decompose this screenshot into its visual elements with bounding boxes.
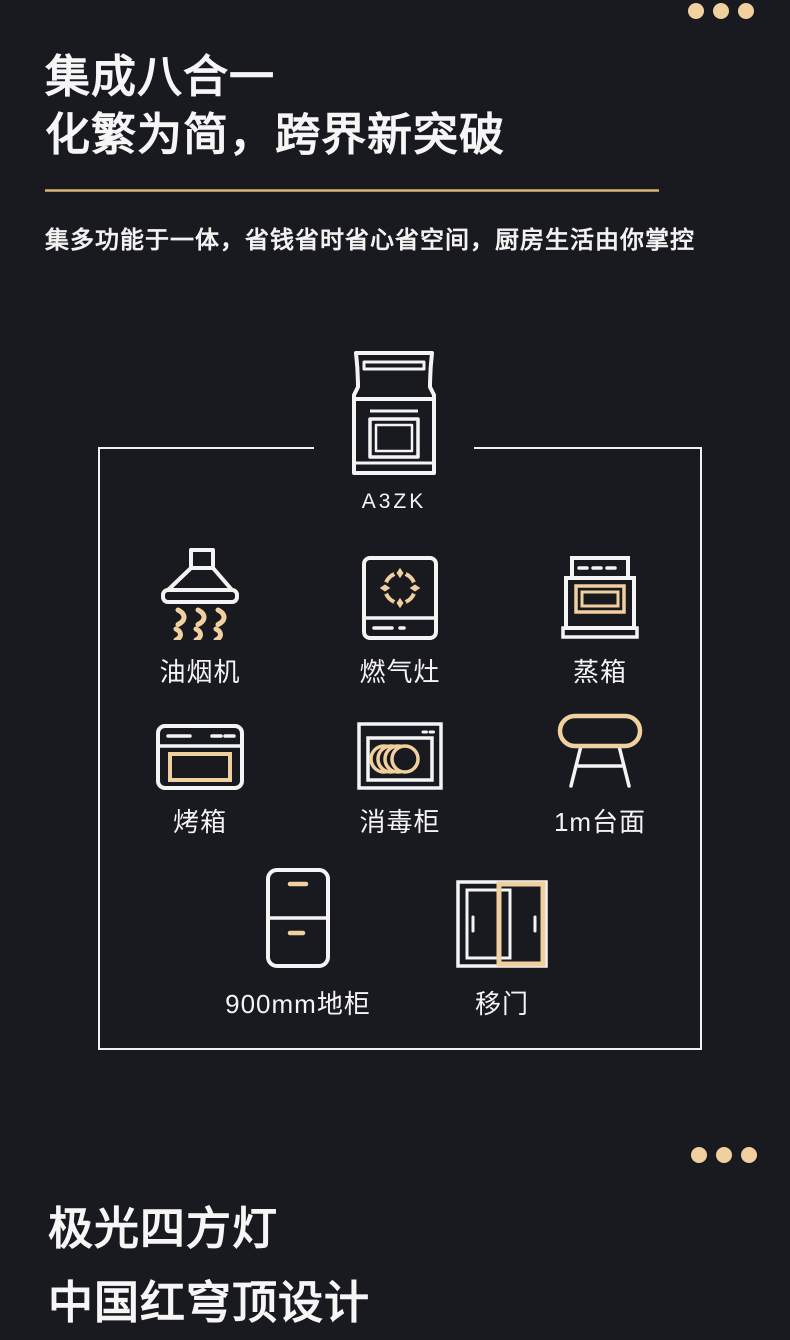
dot-icon [691,1147,707,1163]
dot-icon [713,3,729,19]
ellipsis-dots-top [688,3,754,19]
diagram-row-2: 烤箱 消毒柜 [100,712,700,839]
diagram-item-sliding-door: 移门 [400,868,604,1021]
footer-title-line1: 极光四方灯 [48,1192,370,1266]
sliding-door-icon [456,868,548,968]
disinfection-cabinet-icon [357,712,443,790]
item-label: 燃气灶 [359,652,440,689]
hero-title-line2: 化繁为简，跨界新突破 [45,106,505,164]
steam-oven-icon [561,545,639,640]
diagram-row-1: 油烟机 燃气 [100,545,700,689]
range-hood-icon [155,545,245,640]
countertop-icon [555,712,645,790]
dot-icon [716,1147,732,1163]
item-label: 移门 [475,984,529,1021]
item-label: 油烟机 [159,652,240,689]
model-label: A3ZK [314,490,474,514]
item-label: 蒸箱 [573,652,627,689]
diagram-row-3: 900mm地柜 移门 [98,868,702,1021]
diagram-item-gas-stove: 燃气灶 [300,545,500,689]
dot-icon [741,1147,757,1163]
item-label: 1m台面 [554,802,646,839]
diagram-item-steam-oven: 蒸箱 [500,545,700,689]
dot-icon [738,3,754,19]
marketing-page: 集成八合一 化繁为简，跨界新突破 集多功能于一体，省钱省时省心省空间，厨房生活由… [0,0,790,1322]
diagram-item-range-hood: 油烟机 [100,545,300,689]
integrated-stove-icon [314,351,474,477]
dot-icon [688,3,704,19]
gas-stove-icon [362,545,438,640]
diagram-item-base-cabinet: 900mm地柜 [196,868,400,1021]
item-label: 900mm地柜 [225,984,371,1021]
gold-divider [45,189,659,192]
oven-icon [156,712,244,790]
footer-title: 极光四方灯 中国红穹顶设计 [48,1192,370,1340]
hero-title-line1: 集成八合一 [45,48,505,106]
ellipsis-dots-bottom [691,1147,757,1163]
diagram-item-oven: 烤箱 [100,712,300,839]
diagram-item-disinfection-cabinet: 消毒柜 [300,712,500,839]
hero-title: 集成八合一 化繁为简，跨界新突破 [45,48,505,164]
item-label: 消毒柜 [359,802,440,839]
diagram-item-countertop: 1m台面 [500,712,700,839]
hero-subtitle: 集多功能于一体，省钱省时省心省空间，厨房生活由你掌控 [45,220,695,255]
item-label: 烤箱 [173,802,227,839]
base-cabinet-icon [266,868,330,968]
footer-title-line2: 中国红穹顶设计 [48,1266,370,1340]
